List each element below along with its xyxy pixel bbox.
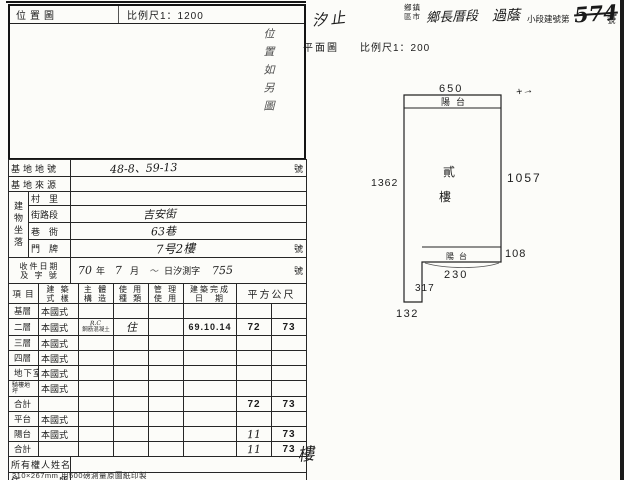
balcony-top-label: 陽台	[441, 96, 471, 107]
balcony-area-dec: 73	[272, 427, 307, 442]
lot-source-value-cell	[71, 177, 307, 192]
floor-style: 本國式	[39, 412, 79, 427]
dim-balcony-width: 230	[444, 269, 468, 281]
floor-use: 住	[125, 319, 137, 335]
header-style: 建 築式 樣	[39, 284, 79, 304]
handwritten-floor-note: 樓	[296, 439, 316, 466]
lot-source-label: 基地來源	[9, 177, 71, 192]
registration-form: 基地地號 48-8、59-13 號 基地來源 建物坐落 村 里	[8, 160, 306, 480]
subtotal-area-dec: 73	[272, 397, 307, 412]
intake-day-mark: 〜	[149, 264, 158, 277]
village-value-cell	[71, 192, 307, 206]
table-row-floor-4: 四層 本國式	[9, 351, 307, 366]
table-row: 收件日期 及 字 號 70 年 7 月 〜 日 汐測字 755 號	[9, 258, 307, 284]
floor-label: 三層	[11, 337, 36, 349]
scan-edge-top	[6, 1, 306, 3]
street-label: 街路段	[29, 206, 71, 223]
table-row-subtotal: 合計 72 73	[9, 397, 307, 412]
header-style-l1: 建 築	[46, 285, 70, 294]
village-label: 村 里	[29, 192, 71, 206]
floor-completion-date: 69.10.14	[184, 319, 237, 336]
subtotal-area-int: 72	[237, 397, 272, 412]
lot-number-value: 48-8、59-13	[110, 160, 178, 177]
total-area-int-value: 11	[247, 442, 261, 455]
intake-label-line2: 及 字 號	[20, 271, 58, 280]
floor-style: 本國式	[39, 319, 79, 336]
address-table: 建物坐落 村 里 街路段 吉安街 巷 衖 63巷 門 牌 7号2樓 號	[8, 191, 307, 258]
handwritten-subsection: 過蔭	[492, 5, 521, 26]
table-row: 基地來源	[9, 177, 307, 192]
header-structure-l1: 主 體	[84, 285, 108, 294]
location-map-title: 位置圖	[10, 6, 119, 23]
lane-value-cell: 63巷	[71, 223, 307, 240]
table-row: 建物坐落 村 里	[9, 192, 307, 206]
table-row-basement: 地下室 本國式	[9, 366, 307, 381]
table-row-arcade: 騎樓地坪 本國式	[9, 381, 307, 397]
floor-label: 騎樓地坪	[11, 382, 36, 396]
header-use-type-l1: 使 用	[119, 285, 143, 294]
handwritten-town: 汐止	[311, 6, 349, 31]
balcony-bottom-label: 陽台	[446, 251, 472, 261]
floor-area-dec: 73	[272, 319, 307, 336]
header-completion-l1: 建築完成	[190, 285, 230, 294]
paper-spec-caption: 310×267mm 用500磅測量原圖紙印製	[12, 470, 147, 480]
header-management: 管 理使 用	[149, 284, 184, 304]
scanned-survey-form: 位置圖 比例尺1：1200 位置如另圖 基地地號 48-8、59-13 號 基地…	[0, 0, 624, 480]
dim-leg-height: 317	[415, 283, 435, 294]
header-use-type: 使 用種 類	[114, 284, 149, 304]
dim-leg-width: 132	[396, 308, 419, 320]
street-value-cell: 吉安街	[71, 206, 307, 223]
door-plate-value: 7号2樓	[156, 240, 196, 258]
intake-value-cell: 70 年 7 月 〜 日 汐測字 755 號	[71, 258, 307, 284]
district-label: 鄉鎮 區市	[404, 4, 421, 21]
dim-top: 650	[439, 83, 463, 95]
location-map-header: 位置圖 比例尺1：1200	[10, 6, 304, 24]
floor-area-int: 72	[237, 319, 272, 336]
floor-style: 本國式	[39, 304, 79, 319]
intake-office: 汐測字	[173, 264, 200, 277]
lot-number-unit: 號	[294, 162, 303, 175]
dim-balcony-height: 108	[505, 248, 526, 260]
intake-table: 收件日期 及 字 號 70 年 7 月 〜 日 汐測字 755 號	[8, 257, 307, 284]
subsection-number-label: 小段建號第	[527, 13, 570, 25]
floor-label: 平台	[11, 413, 36, 425]
header-area: 平方公尺	[237, 284, 307, 304]
dim-right: 1057	[507, 171, 542, 185]
header-style-l2: 式 樣	[46, 294, 70, 303]
table-row: 街路段 吉安街	[9, 206, 307, 223]
handwritten-map-note: 位置如另圖	[260, 28, 276, 118]
floor-char-1: 貳	[443, 164, 455, 179]
location-map-panel: 位置圖 比例尺1：1200 位置如另圖	[8, 4, 306, 160]
door-plate-value-cell: 7号2樓 號	[71, 240, 307, 258]
floor-char-2: 樓	[439, 189, 451, 204]
street-value: 吉安街	[143, 206, 177, 223]
floor-style: 本國式	[39, 427, 79, 442]
door-plate-label: 門 牌	[29, 240, 71, 258]
intake-unit: 號	[294, 264, 303, 277]
table-row-floor-3: 三層 本國式	[9, 336, 307, 351]
total-area-int: 11	[237, 442, 272, 457]
floor-area-table: 項 目 建 築式 樣 主 體構 造 使 用種 類 管 理使 用 建築完成日 期 …	[8, 283, 307, 457]
header-management-l2: 使 用	[154, 294, 178, 303]
table-row-floor-2: 二層 本國式 R.C鋼筋混凝土 住 69.10.14 72 73	[9, 319, 307, 336]
header-use-type-l2: 種 類	[119, 294, 143, 303]
floor-style: 本國式	[39, 366, 79, 381]
lot-table: 基地地號 48-8、59-13 號 基地來源	[8, 159, 307, 192]
plan-title: 平面圖	[303, 39, 339, 54]
scan-edge-right	[620, 0, 624, 480]
table-row-platform: 平台 本國式	[9, 412, 307, 427]
floor-plan-drawing: 650 陽台 1362 1057 貳 樓 陽台 108 230 317 132 …	[358, 76, 558, 324]
lane-label: 巷 衖	[29, 223, 71, 240]
table-row-balcony: 陽台 本國式 11 73	[9, 427, 307, 442]
table-row: 基地地號 48-8、59-13 號	[9, 160, 307, 177]
building-location-group-label: 建物坐落	[9, 192, 29, 258]
building-number-unit: 號	[607, 14, 616, 26]
floor-label: 四層	[11, 352, 36, 364]
header-completion-date: 建築完成日 期	[184, 284, 237, 304]
door-plate-unit: 號	[294, 242, 303, 255]
lane-value: 63巷	[151, 223, 177, 240]
floor-style: 本國式	[39, 381, 79, 397]
floor-label: 二層	[11, 321, 36, 333]
table-row: 門 牌 7号2樓 號	[9, 240, 307, 258]
intake-label: 收件日期 及 字 號	[9, 258, 71, 284]
plan-scale: 比例尺1：200	[360, 39, 430, 54]
dim-left: 1362	[371, 177, 398, 189]
district-label-line2: 區市	[404, 12, 421, 21]
intake-month-unit: 月	[130, 264, 139, 277]
floor-label: 陽台	[11, 428, 36, 440]
header-structure: 主 體構 造	[79, 284, 114, 304]
lot-number-value-cell: 48-8、59-13 號	[71, 160, 307, 177]
structure-rc: R.C	[90, 321, 101, 327]
structure-stamp: 鋼筋混凝土	[82, 327, 110, 333]
table-row-total: 合計 11 73	[9, 442, 307, 457]
intake-year-value: 70	[78, 264, 92, 277]
handwritten-mark: +→	[515, 84, 534, 99]
floor-style: 本國式	[39, 351, 79, 366]
intake-doc-number: 755	[212, 264, 233, 278]
handwritten-section: 鄉長厝段	[426, 5, 479, 26]
header-completion-l2: 日 期	[195, 294, 225, 303]
floor-style: 本國式	[39, 336, 79, 351]
balcony-area-int-value: 11	[247, 427, 261, 440]
location-map-scale: 比例尺1：1200	[119, 7, 204, 22]
intake-label-line1: 收件日期	[20, 262, 60, 271]
total-label: 合計	[11, 443, 36, 455]
table-row-floor-1: 基層 本國式	[9, 304, 307, 319]
balcony-area-int: 11	[237, 427, 272, 442]
lot-number-label: 基地地號	[9, 160, 71, 177]
floor-label: 基層	[11, 305, 36, 317]
header-management-l1: 管 理	[154, 285, 178, 294]
table-row: 巷 衖 63巷	[9, 223, 307, 240]
header-structure-l2: 構 造	[84, 294, 108, 303]
header-item: 項 目	[9, 284, 39, 304]
floor-label: 地下室	[11, 367, 36, 379]
dimension-brace	[425, 263, 499, 268]
intake-year-unit: 年	[96, 264, 105, 277]
subtotal-label: 合計	[11, 398, 36, 410]
floor-structure: R.C鋼筋混凝土	[79, 319, 114, 336]
intake-day-unit: 日	[164, 264, 173, 277]
intake-month-value: 7	[115, 264, 122, 277]
table-header-row: 項 目 建 築式 樣 主 體構 造 使 用種 類 管 理使 用 建築完成日 期 …	[9, 284, 307, 304]
